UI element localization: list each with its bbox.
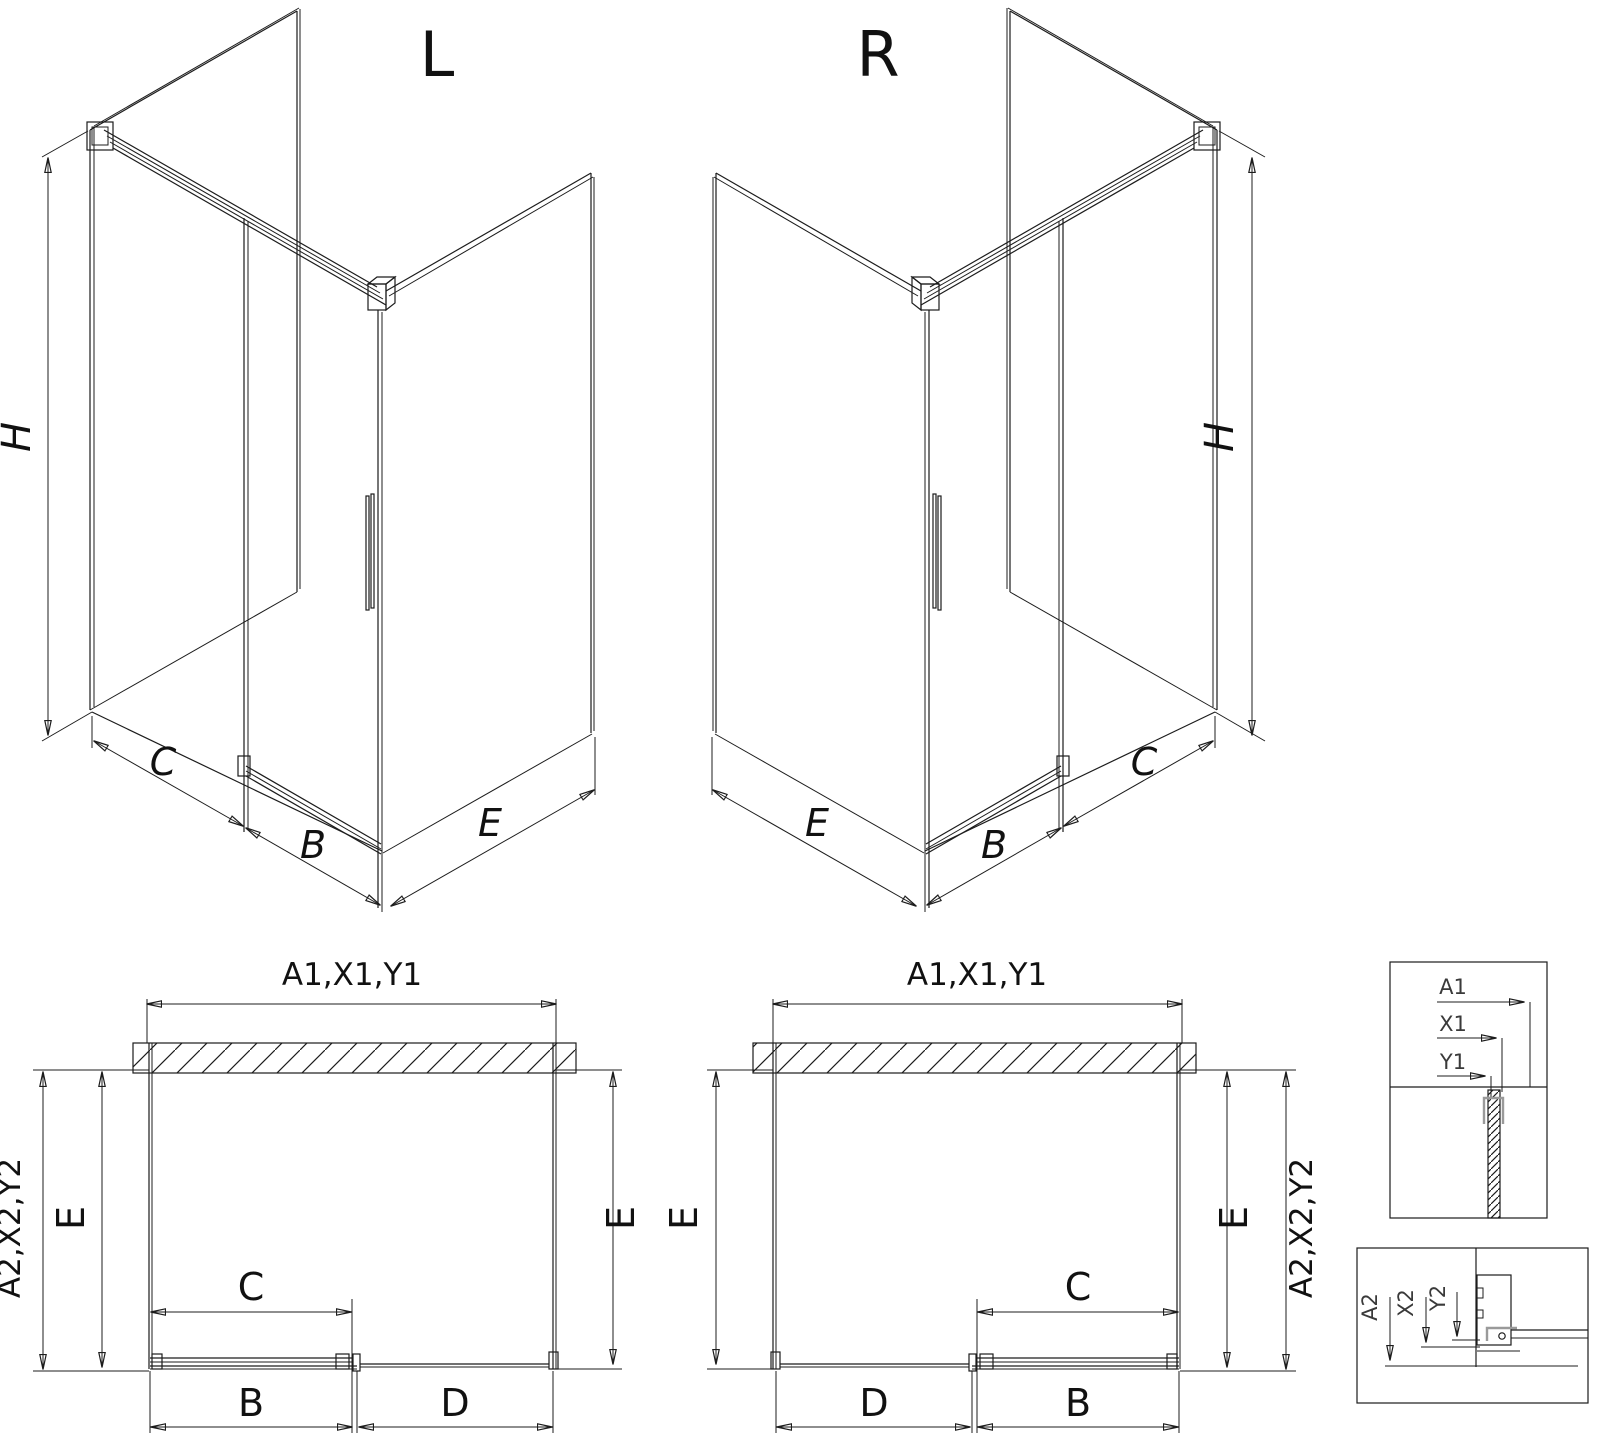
dim-label-e-left: E [49, 1206, 93, 1230]
dim-label-a2: A2,X2,Y2 [1284, 1158, 1320, 1298]
plan-r-glass [771, 1043, 1180, 1369]
plan-l-door-edge [353, 1354, 360, 1371]
plan-view-right: A1,X1,Y1 E E A2,X2,Y2 C B D [662, 957, 1320, 1433]
iso-r-top-rail [912, 122, 1220, 310]
plan-r-wall-section [753, 1043, 1196, 1073]
plan-r-door-edge [969, 1354, 976, 1371]
iso-l-wall-bracket [87, 122, 113, 150]
dim-label-h: H [0, 422, 40, 452]
iso-r-side-panel-right [1007, 8, 1217, 710]
detail-label-y1: Y1 [1439, 1050, 1466, 1074]
technical-drawing: L [0, 0, 1600, 1438]
iso-l-side-panel-right [378, 173, 594, 908]
dim-label-e-left: E [662, 1206, 706, 1230]
detail-label-x1: X1 [1439, 1012, 1467, 1036]
dim-label-e-right: E [1212, 1206, 1256, 1230]
dim-label-b: B [1065, 1381, 1091, 1425]
dim-label-c: C [1065, 1265, 1092, 1309]
iso-l-floor-front [92, 712, 382, 851]
dim-label-c: C [1131, 740, 1158, 784]
view-title-left: L [420, 18, 455, 91]
plan-l-wall-section [133, 1043, 576, 1073]
iso-view-left: L [0, 8, 595, 912]
dim-label-d: D [440, 1381, 469, 1425]
detail-label-a2: A2 [1358, 1293, 1382, 1321]
dim-label-e: E [478, 801, 502, 845]
dim-label-c: C [150, 740, 177, 784]
dim-label-a1: A1,X1,Y1 [282, 957, 422, 993]
detail-label-y2: Y2 [1426, 1285, 1450, 1312]
iso-r-floor-front [925, 712, 1215, 851]
detail-roller-carriage [1477, 1275, 1588, 1351]
dim-label-a2: A2,X2,Y2 [0, 1158, 28, 1298]
detail-floor-rail: A2 X2 Y2 [1357, 1248, 1588, 1403]
plan-l-glass [149, 1043, 558, 1369]
dim-label-a1: A1,X1,Y1 [907, 957, 1047, 993]
detail-label-x2: X2 [1394, 1289, 1418, 1317]
view-title-right: R [856, 18, 899, 91]
dim-label-e: E [805, 801, 829, 845]
shower-enclosure-diagram: L [0, 0, 1600, 1438]
dim-label-d: D [859, 1381, 888, 1425]
dim-label-h: H [1197, 422, 1243, 452]
dim-label-e-right: E [599, 1206, 643, 1230]
iso-r-side-panel-left [713, 173, 929, 908]
iso-l-top-rail [87, 122, 395, 310]
plan-r-slider-rail [780, 1354, 1179, 1371]
iso-l-door-handle [366, 494, 374, 610]
dim-label-c: C [238, 1265, 265, 1309]
iso-l-corner-cube [368, 277, 395, 310]
iso-l-side-panel-left [90, 8, 300, 710]
iso-r-dimensions: H C B E [712, 131, 1265, 912]
plan-view-left: A1,X1,Y1 A2,X2,Y2 E E C B D [0, 957, 643, 1433]
dim-label-b: B [238, 1381, 264, 1425]
dim-label-b: B [300, 823, 326, 867]
iso-l-door-junction [244, 218, 248, 832]
dim-label-b: B [981, 823, 1007, 867]
detail-wall-profile: A1 X1 Y1 [1390, 962, 1547, 1218]
detail-glass-section [1488, 1090, 1500, 1218]
iso-view-right: R [712, 8, 1265, 912]
iso-r-door-junction [1059, 218, 1063, 832]
detail-label-a1: A1 [1439, 975, 1467, 999]
iso-r-corner-cube [912, 277, 939, 310]
detail-top-frame [1390, 962, 1547, 1218]
iso-r-wall-bracket [1194, 122, 1220, 150]
iso-r-door-handle [933, 494, 941, 610]
plan-l-slider-rail [150, 1354, 549, 1371]
detail-bottom-frame [1357, 1248, 1588, 1403]
